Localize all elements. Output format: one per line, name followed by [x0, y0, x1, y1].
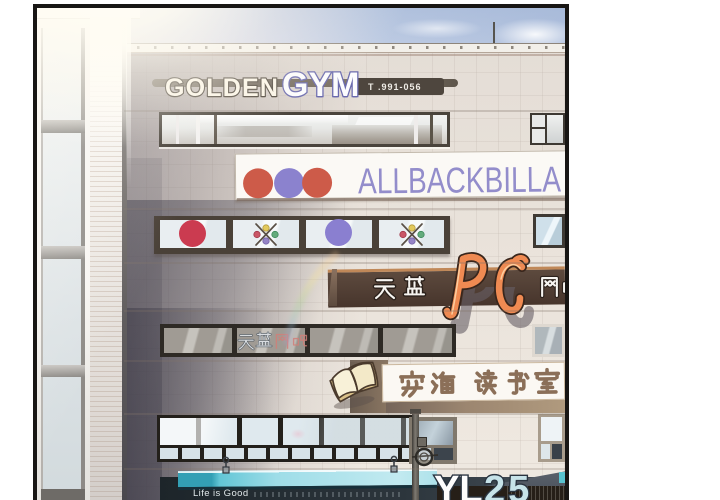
svg-text:GYM: GYM [282, 66, 359, 104]
svg-text:GOLDEN: GOLDEN [165, 74, 279, 102]
svg-text:YL: YL [434, 469, 483, 500]
svg-text:25: 25 [484, 469, 532, 500]
